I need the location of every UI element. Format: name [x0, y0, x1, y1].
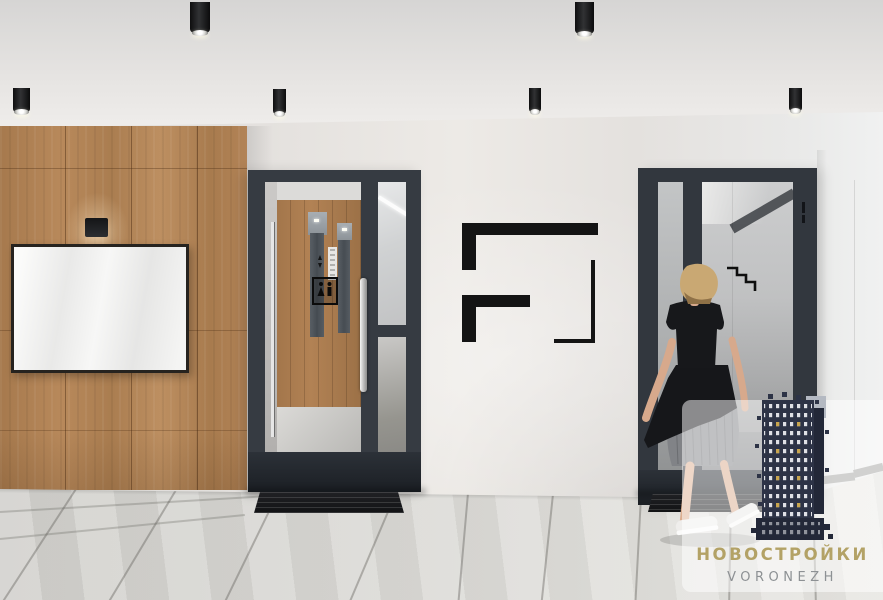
floor-plank-seam: [537, 494, 554, 600]
door-hinge: [802, 202, 805, 213]
building-tower-icon: [748, 386, 836, 546]
floor-plank-seam: [455, 493, 469, 600]
sidelight-glass-top: [378, 182, 406, 325]
ceiling: [0, 0, 883, 129]
elevator-call-panel: [328, 247, 337, 280]
sidelight-glass-bottom: [378, 337, 406, 452]
elevator-indicator-light: [314, 219, 319, 222]
inner-door-handle: [271, 222, 274, 437]
elevator-indicator-light: [342, 228, 347, 231]
poster-frame: [11, 244, 189, 373]
elevator-indicator-panel: [308, 212, 327, 235]
fs-monogram-logo: [591, 260, 595, 343]
lobby-door: [248, 170, 421, 492]
elevator-doors: [338, 240, 350, 333]
wood-wall-shading: [0, 430, 247, 490]
hall-floor: [277, 407, 361, 452]
ceiling-light-icon: [273, 89, 286, 115]
fs-monogram-logo: [462, 223, 598, 235]
watermark-city: VORONEZH: [690, 570, 875, 585]
fs-monogram-logo: [554, 339, 595, 343]
restroom-pictograms: [314, 279, 336, 303]
tower-base: [751, 518, 833, 540]
ceiling-light-icon: [13, 88, 30, 113]
light-lens: [790, 108, 801, 114]
floor-corner-shadow: [0, 500, 260, 600]
elevator-arrows-icon: [315, 254, 327, 270]
call-panel-buttons: [330, 249, 335, 278]
restroom-sign-icon: [312, 277, 338, 305]
black-blouse: [666, 301, 724, 369]
sidelight-divider: [378, 325, 406, 337]
light-lens: [14, 109, 28, 115]
doormat: [254, 492, 404, 513]
wall-sconce-icon: [85, 218, 108, 237]
fs-monogram-logo: [462, 295, 476, 342]
ceiling-light-icon: [575, 2, 594, 35]
fs-monogram-logo: [462, 223, 476, 270]
ceiling-light-icon: [190, 2, 210, 34]
ceiling-light-icon: [529, 88, 541, 113]
elevator-indicator-panel: [337, 223, 352, 240]
door-bottom-rail: [248, 452, 421, 492]
watermark-brand: НОВОСТРОЙКИ: [690, 545, 875, 564]
lobby-render: НОВОСТРОЙКИ VORONEZH: [0, 0, 883, 600]
light-lens: [530, 109, 540, 115]
door-handle-bar: [360, 278, 367, 392]
ceiling-light-icon: [789, 88, 802, 112]
door-hinge: [802, 215, 805, 223]
light-lens: [274, 111, 285, 117]
tower-side-face: [814, 408, 824, 514]
light-reflection: [378, 195, 406, 216]
lobby-door-glass: [265, 182, 361, 452]
